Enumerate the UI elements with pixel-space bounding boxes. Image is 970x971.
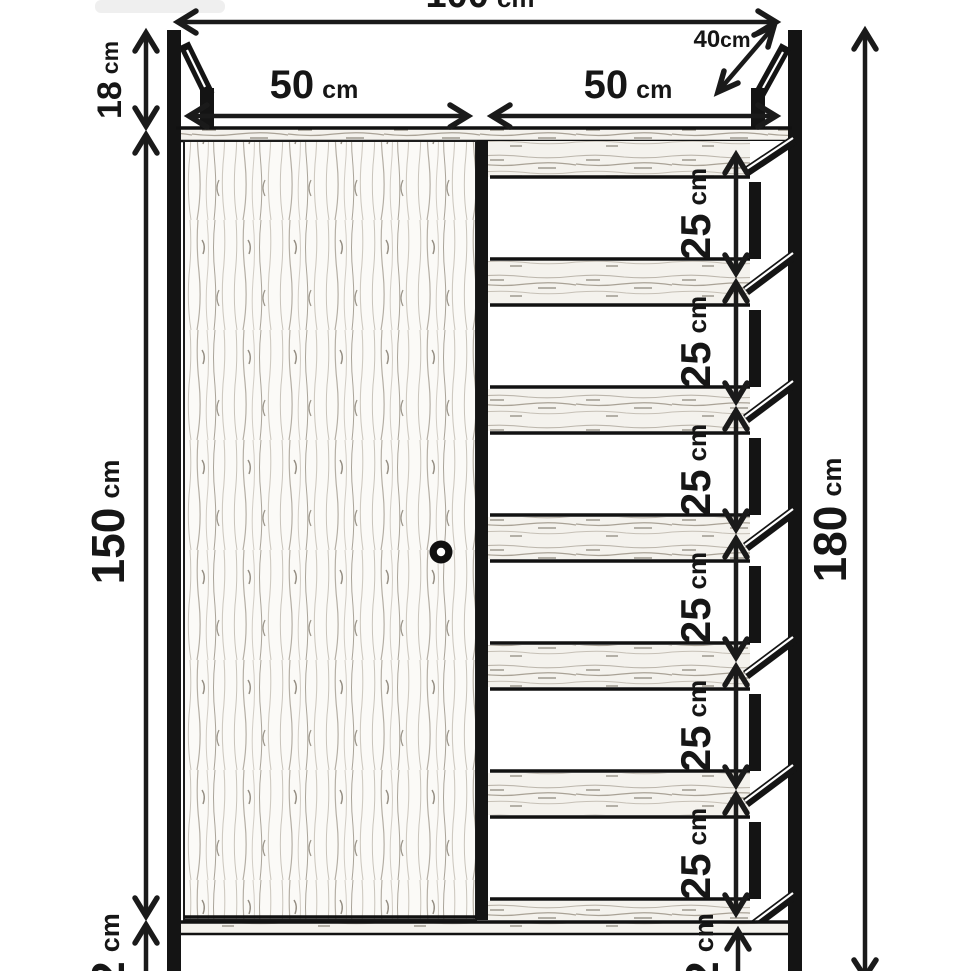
left-post [167, 30, 181, 971]
dim-shelf-gap-5: 25cm [672, 667, 747, 785]
door-knob-hole [437, 548, 445, 556]
dim-top-section-label: 18cm [91, 41, 129, 119]
dim-door-width: 50cm [189, 63, 468, 127]
dim-plinth-left-label: 2cm [82, 913, 134, 971]
right-post [788, 30, 802, 971]
dim-plinth-left: 2cm [82, 913, 157, 971]
dim-door-width-label: 50cm [270, 63, 359, 107]
dim-shelf-gap-3: 25cm [672, 411, 747, 529]
dim-total-width: 100cm [178, 0, 776, 33]
furniture-dimension-diagram: 100cm 18cm 40cm 50cm 50cm 150cm [0, 0, 970, 971]
dim-body-height-label: 150cm [82, 460, 134, 585]
dim-shelf-gap-4: 25cm [672, 539, 747, 657]
dim-top-section-height: 18cm [91, 33, 157, 126]
diagram-canvas: 100cm 18cm 40cm 50cm 50cm 150cm [0, 0, 970, 971]
dim-shelf-gap-2: 25cm [672, 283, 747, 401]
dim-shelf-gap-6: 25cm [672, 795, 747, 913]
dim-depth-label: 40cm [693, 26, 750, 53]
cabinet-top [176, 128, 792, 142]
dim-shelf-gap-1: 25cm [672, 155, 747, 273]
dim-total-height-label: 180cm [804, 458, 856, 583]
door-edge [476, 141, 488, 920]
dim-total-height: 180cm [804, 31, 876, 971]
dim-total-width-label: 100cm [426, 0, 535, 16]
dim-body-height: 150cm [82, 135, 157, 916]
scan-smudge [95, 0, 225, 13]
dim-shelf-width-label: 50cm [584, 63, 673, 107]
door [184, 141, 488, 920]
